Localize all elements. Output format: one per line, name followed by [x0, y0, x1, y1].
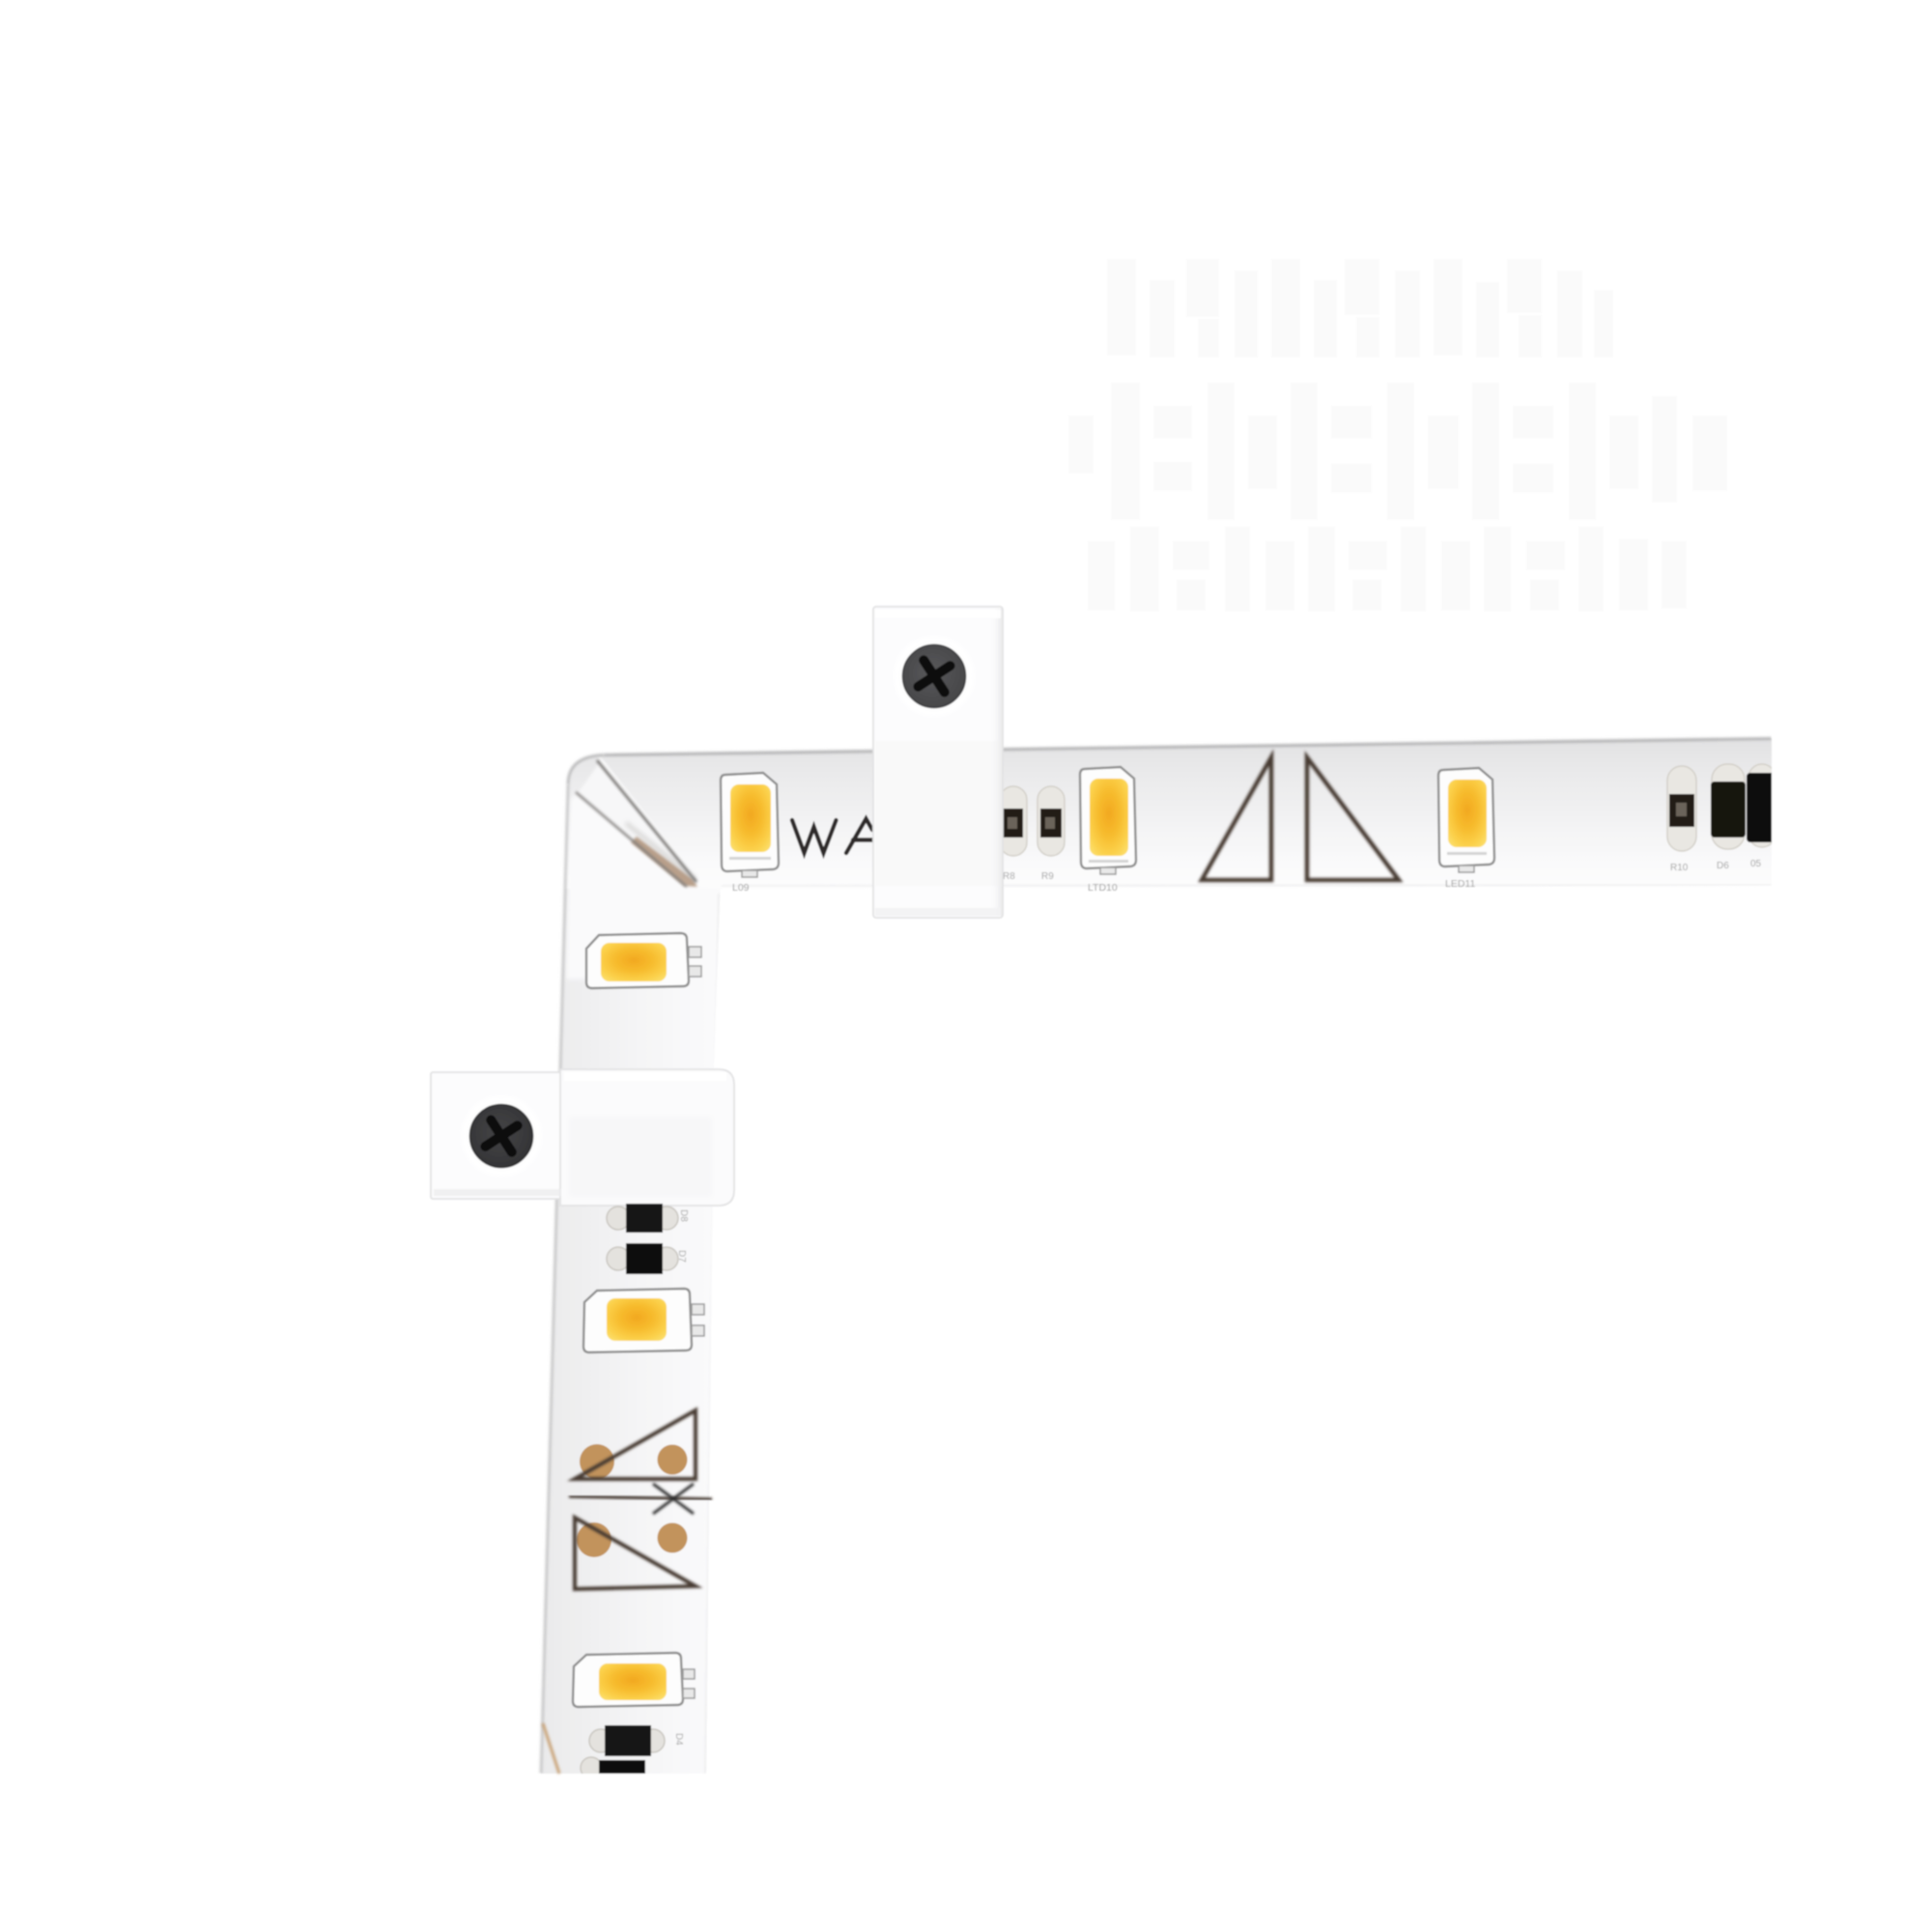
svg-text:D7: D7 — [676, 1250, 687, 1263]
svg-text:R8: R8 — [1003, 871, 1015, 882]
svg-text:D4: D4 — [673, 1733, 684, 1746]
svg-text:R10: R10 — [1670, 863, 1689, 873]
svg-text:LTD10: LTD10 — [1088, 882, 1118, 894]
svg-text:D8: D8 — [678, 1209, 689, 1222]
svg-text:LED11: LED11 — [1445, 878, 1475, 890]
svg-text:L09: L09 — [732, 882, 750, 894]
svg-text:05: 05 — [1750, 859, 1762, 869]
svg-text:R9: R9 — [1041, 871, 1054, 882]
svg-text:D6: D6 — [1717, 861, 1729, 871]
